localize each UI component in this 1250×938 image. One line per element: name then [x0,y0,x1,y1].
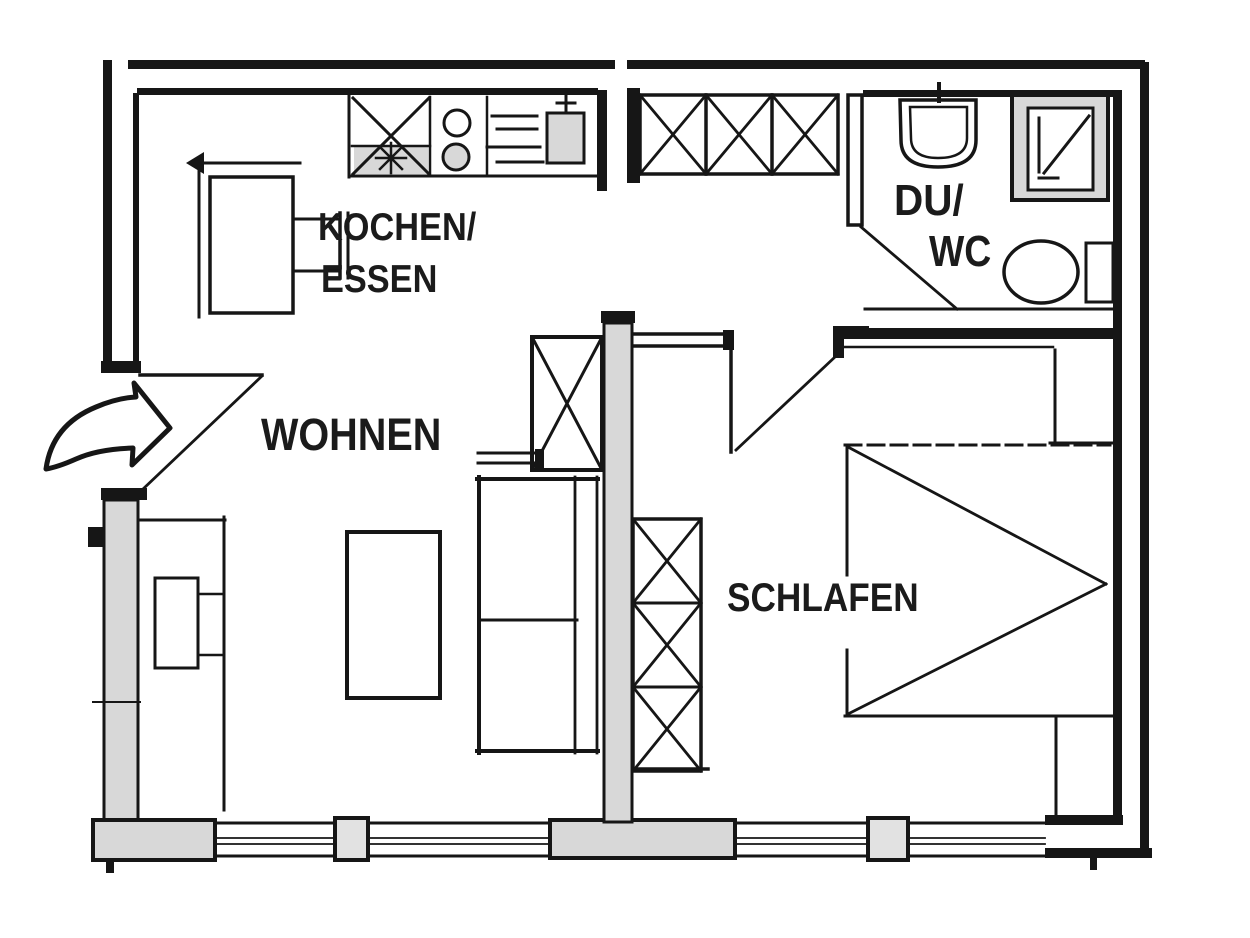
sideboard-tv [140,517,225,810]
stove-icon [443,110,470,170]
room-label-living: WOHNEN [261,412,441,457]
sink-icon [352,98,430,174]
window-c [735,823,868,856]
boiler-icon [487,95,584,163]
bedroom-door [731,348,835,452]
entrance-arrow-icon [46,383,170,469]
kitchen-counter [349,95,598,177]
room-label-kitchen-line1: KOCHEN/ [318,208,476,247]
hall-closet [627,88,838,183]
bedroom-wardrobe [633,519,708,771]
room-label-bath-line2: WC [929,230,991,274]
sofa [477,449,598,753]
coffee-table [347,532,440,698]
floor-plan: KOCHEN/ ESSEN WOHNEN SCHLAFEN DU/ WC [0,0,1250,938]
shower-icon [1012,95,1108,200]
room-label-bedroom: SCHLAFEN [727,578,919,618]
nightstand-top [1050,350,1113,443]
window-a [215,823,335,856]
window-d [908,823,1045,856]
toilet-icon [1004,241,1113,303]
room-label-kitchen-line2: ESSEN [321,260,437,299]
room-label-bath-line1: DU/ [894,179,964,223]
floor-plan-drawing [0,0,1250,938]
window-b [368,823,550,856]
